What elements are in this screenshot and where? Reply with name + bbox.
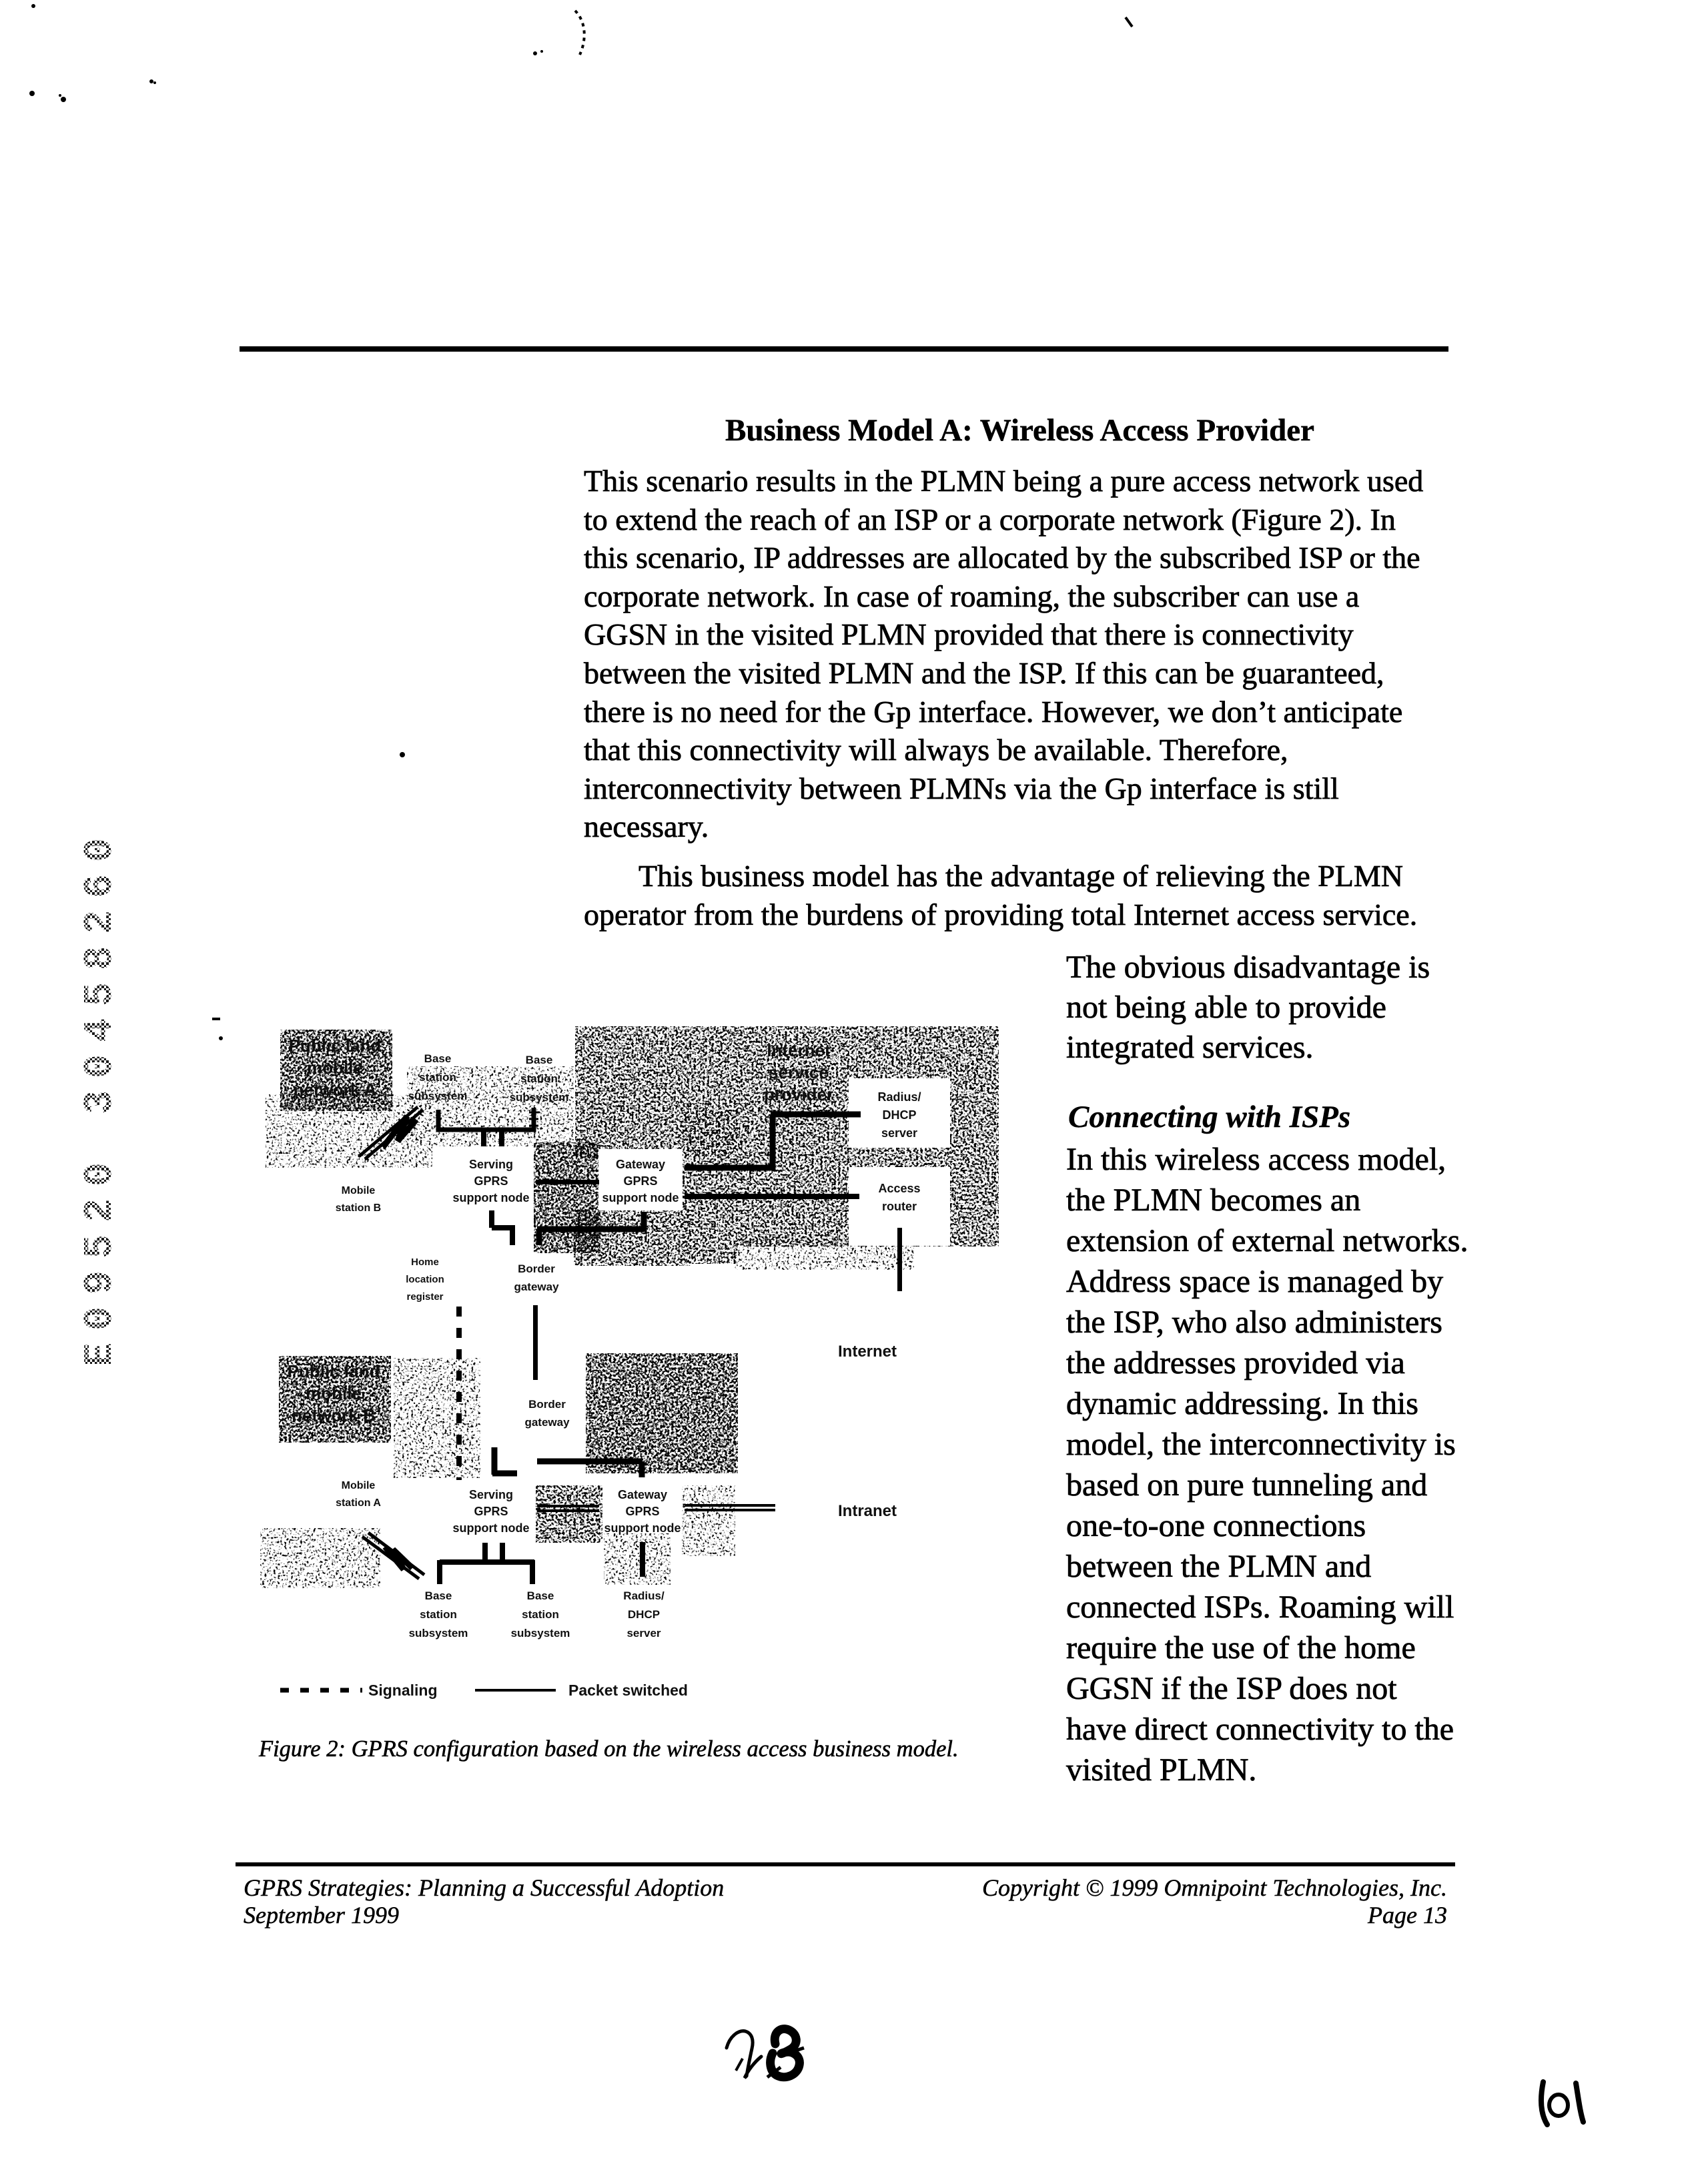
svg-text:E09520 30458260: E09520 30458260 — [78, 826, 123, 1367]
